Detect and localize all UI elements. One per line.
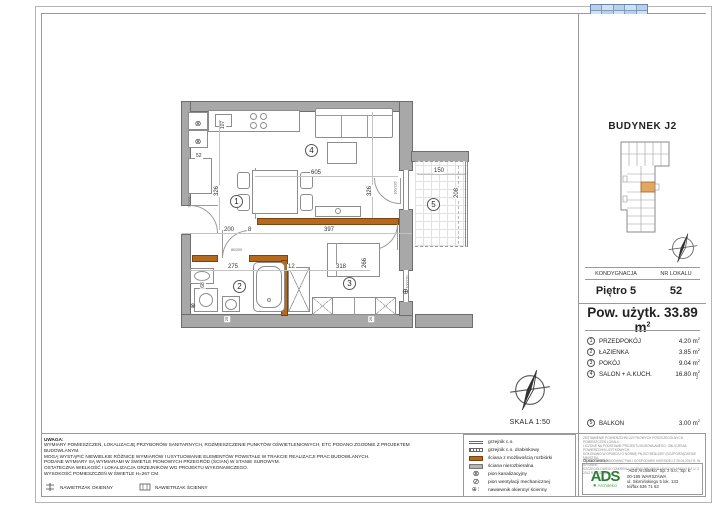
dim-line (190, 270, 370, 271)
sofa (315, 108, 393, 138)
ads-logo-subtext: ● Architekci (583, 483, 627, 489)
dim-line (372, 112, 373, 218)
removable-wall-icon (468, 456, 484, 461)
sewage-stack-icon: ⊗ (195, 119, 202, 128)
kondygnacja-header: KONDYGNACJA (585, 271, 647, 277)
room-area: 9.04 m2 (679, 358, 700, 367)
vent-legend-row: NAWIETRZAK OKIENNY NAWIETRZAK ŚCIENNY (44, 483, 344, 491)
legend-label: ściana z możliwością rozbiórki (488, 456, 552, 461)
dim-label: 107 (220, 120, 226, 130)
credit-block: ZESTAWIENIE POWIERZCHNI UŻYTKOWYCH POSZC… (579, 434, 706, 497)
room-number-badge: 3 (587, 359, 595, 367)
floor-plan: ⊗ ⊗ ⊗ (175, 90, 520, 340)
ads-logo-text: ADS (583, 470, 627, 483)
stray-superscript: 2 (696, 375, 698, 380)
window-size-label: 100/220 (406, 276, 410, 289)
wardrobe-cell-x (375, 297, 396, 315)
legend-row: grzejnik c.o. (468, 438, 571, 446)
dim-label: 12 (287, 264, 296, 270)
dim-line (182, 233, 412, 234)
legend-row: ściana z możliwością rozbiórki (468, 454, 571, 462)
chair (237, 172, 250, 189)
wardrobe-divider (354, 297, 355, 315)
wall-right-middle (400, 210, 412, 270)
highlighted-unit (641, 182, 655, 192)
floor-value: Piętro 5 (585, 285, 647, 297)
area-rule (585, 330, 700, 331)
vent-wall-item: NAWIETRZAK ŚCIENNY (139, 483, 208, 491)
nr-lokalu-header: NR LOKALU (651, 271, 701, 277)
entry-door-leaf (190, 205, 218, 206)
architect-credit-box: ADS ● Architekci "ADS Architekci" Sp. z … (582, 463, 703, 495)
legend-row: ⊗ pion kanalizacyjny (468, 470, 571, 478)
wall-bottom (182, 315, 412, 327)
sewage-stack-icon: ⊗ (190, 303, 196, 311)
wall-vent-icon (139, 483, 151, 491)
legend-box: grzejnik c.o. grzejnik c.o. drabinkowy ś… (463, 434, 576, 497)
scale-block: SKALA 1:50 (498, 368, 562, 426)
bath-door-arc (222, 230, 250, 258)
dim-label: 208 (454, 187, 460, 199)
room-name: ŁAZIENKA (599, 349, 679, 356)
wall-left-lower (182, 235, 190, 327)
scale-label: SKALA 1:50 (498, 419, 562, 426)
stove-burner (260, 122, 267, 129)
door-size-label: 80/200 (231, 248, 242, 252)
room-area: 3.00 m2 (679, 418, 700, 427)
entry-door-arc (190, 205, 218, 233)
pokoj-door-leaf (397, 224, 398, 250)
bed-pillow-line (336, 243, 337, 277)
room-label-balkon: 5 (427, 198, 440, 211)
sofa-back-line (315, 115, 393, 116)
dim-label: 68 (200, 281, 206, 289)
room-list-row: 4 SALON + A.KUCH. 16.80 m2 (587, 369, 700, 379)
washbasin-bowl (194, 271, 210, 281)
table-rule (585, 267, 700, 268)
notes-block: UWAGA: WYMIARY POMIESZCZEŃ, LOKALIZACJĘ … (44, 437, 454, 477)
note-line: WYMIARY POMIESZCZEŃ, LOKALIZACJĘ PRZYBOR… (44, 442, 454, 448)
ads-logo: ADS ● Architekci (583, 470, 627, 489)
dim-label: 326 (367, 185, 373, 197)
legend-label: nawiewnik okienny/ ścienny (488, 488, 547, 493)
legend-row: ⊘ pion wentylacji mechanicznej (468, 478, 571, 486)
air-inlet-icon: ⊕⫶ (468, 487, 484, 493)
removable-wall-bath-left (193, 256, 217, 261)
stove-burner (250, 122, 257, 129)
door-size-label: 90/200 (188, 197, 192, 208)
mech-vent-stack-icon: ⊘ (468, 478, 484, 486)
dim-label: 25 (368, 316, 374, 322)
title-panel: BUDYNEK J2 (579, 14, 706, 433)
stove-burner (260, 113, 267, 120)
legend-label: grzejnik c.o. (488, 440, 514, 445)
dim-label: 52 (195, 153, 203, 159)
washing-machine-drum (199, 293, 213, 307)
dim-label: 8 (247, 227, 252, 233)
sewage-stack-icon: ⊗ (195, 137, 202, 146)
dim-label: 318 (335, 264, 347, 270)
dim-label: 266 (362, 257, 368, 269)
wall-bottom-neighbor (416, 315, 472, 327)
stove-burner (250, 113, 257, 120)
dim-label: 326 (214, 185, 220, 197)
sofa-cushion-line (341, 115, 342, 138)
room-name: POKÓJ (599, 360, 679, 367)
unit-number-value: 52 (651, 285, 701, 297)
room-list-row: 5 BALKON 3.00 m2 (587, 418, 700, 428)
north-arrow-icon (507, 368, 553, 412)
toilet-bowl (225, 299, 237, 310)
drawing-sheet: ⊗ ⊗ ⊗ (0, 0, 720, 509)
room-label-pokoj: 3 (343, 277, 356, 290)
vent-wall-label: NAWIETRZAK ŚCIENNY (155, 485, 208, 490)
room-number-badge: 1 (587, 337, 595, 345)
room-name: PRZEDPOKÓJ (599, 338, 679, 345)
room-label-salon: 4 (305, 144, 318, 157)
north-arrow-icon (667, 232, 699, 264)
room-area: 3.85 m2 (679, 347, 700, 356)
dim-line-dashed (458, 166, 459, 244)
building-title: BUDYNEK J2 (579, 121, 706, 132)
window-vent-icon (44, 483, 56, 491)
coffee-table (327, 142, 357, 164)
room-number-badge: 4 (587, 370, 595, 378)
bath-door-leaf (222, 230, 223, 258)
ladder-radiator-icon (468, 448, 484, 452)
room-list-row: 2 ŁAZIENKA 3.85 m2 (587, 347, 700, 357)
dim-label: 200 (223, 227, 235, 233)
bathtub-drain (267, 298, 271, 302)
structural-wall-icon (468, 464, 484, 469)
section-rule (579, 303, 706, 304)
shaft-box-1: ⊗ (188, 112, 208, 130)
balcony-door-leaf (400, 178, 401, 204)
radiator-icon (468, 441, 484, 444)
dim-line (255, 176, 398, 177)
legend-row: ściana nierozbieralna (468, 462, 571, 470)
dim-label: 150 (433, 168, 445, 174)
door-size-label: 160/220 (394, 182, 398, 195)
room-list-row: 1 PRZEDPOKÓJ 4.20 m2 (587, 336, 700, 346)
vent-window-item: NAWIETRZAK OKIENNY (44, 483, 113, 491)
table-rule (585, 279, 700, 280)
room-name: SALON + A.KUCH. (599, 371, 675, 378)
dim-label: 25 (224, 316, 230, 322)
room-number-badge: 5 (587, 419, 595, 427)
balcony-door-opening (403, 170, 409, 210)
room-number-badge: 2 (587, 348, 595, 356)
usable-area-sup: 2 (647, 322, 651, 329)
legend-row: grzejnik c.o. drabinkowy (468, 446, 571, 454)
shaft-box-2: ⊗ (188, 130, 208, 148)
wardrobe-tall (288, 267, 310, 312)
bed (327, 243, 380, 277)
room-label-przedpokoj: 1 (230, 195, 243, 208)
dim-line (219, 120, 220, 230)
vent-window-label: NAWIETRZAK OKIENNY (60, 485, 113, 490)
sofa-cushion-line (367, 115, 368, 138)
legend-row: ⊕⫶ nawiewnik okienny/ ścienny (468, 486, 571, 494)
room-label-lazienka: 2 (233, 280, 246, 293)
wall-right-lower (400, 302, 412, 315)
legend-label: grzejnik c.o. drabinkowy (488, 448, 539, 453)
room-name: BALKON (599, 420, 679, 427)
wall-right-upper (400, 102, 412, 170)
room-list-row: 3 POKÓJ 9.04 m2 (587, 358, 700, 368)
wall-balcony-stub (412, 152, 468, 161)
note-line: WYSOKOŚĆ POMIESZCZEŃ W ŚWIETLE H=267 CM. (44, 471, 454, 477)
kitchen-cabinet (188, 158, 212, 194)
dim-label: 605 (310, 170, 322, 176)
vent-stack-icon: ⊕ (402, 288, 409, 296)
chair (300, 194, 313, 211)
dim-label: 397 (323, 227, 335, 233)
building-key-plan (607, 140, 677, 236)
legend-label: pion wentylacji mechanicznej (488, 480, 550, 485)
tv-bench-knob (335, 208, 341, 214)
legend-label: ściana nierozbieralna (488, 464, 533, 469)
room-area: 4.20 m2 (679, 336, 700, 345)
wardrobe-cell-x (312, 297, 333, 315)
legend-label: pion kanalizacyjny (488, 472, 527, 477)
architect-address: "ADS Architekci" Sp. z o.o., Sp. k. 00-1… (627, 468, 702, 490)
dim-label: 275 (227, 264, 239, 270)
